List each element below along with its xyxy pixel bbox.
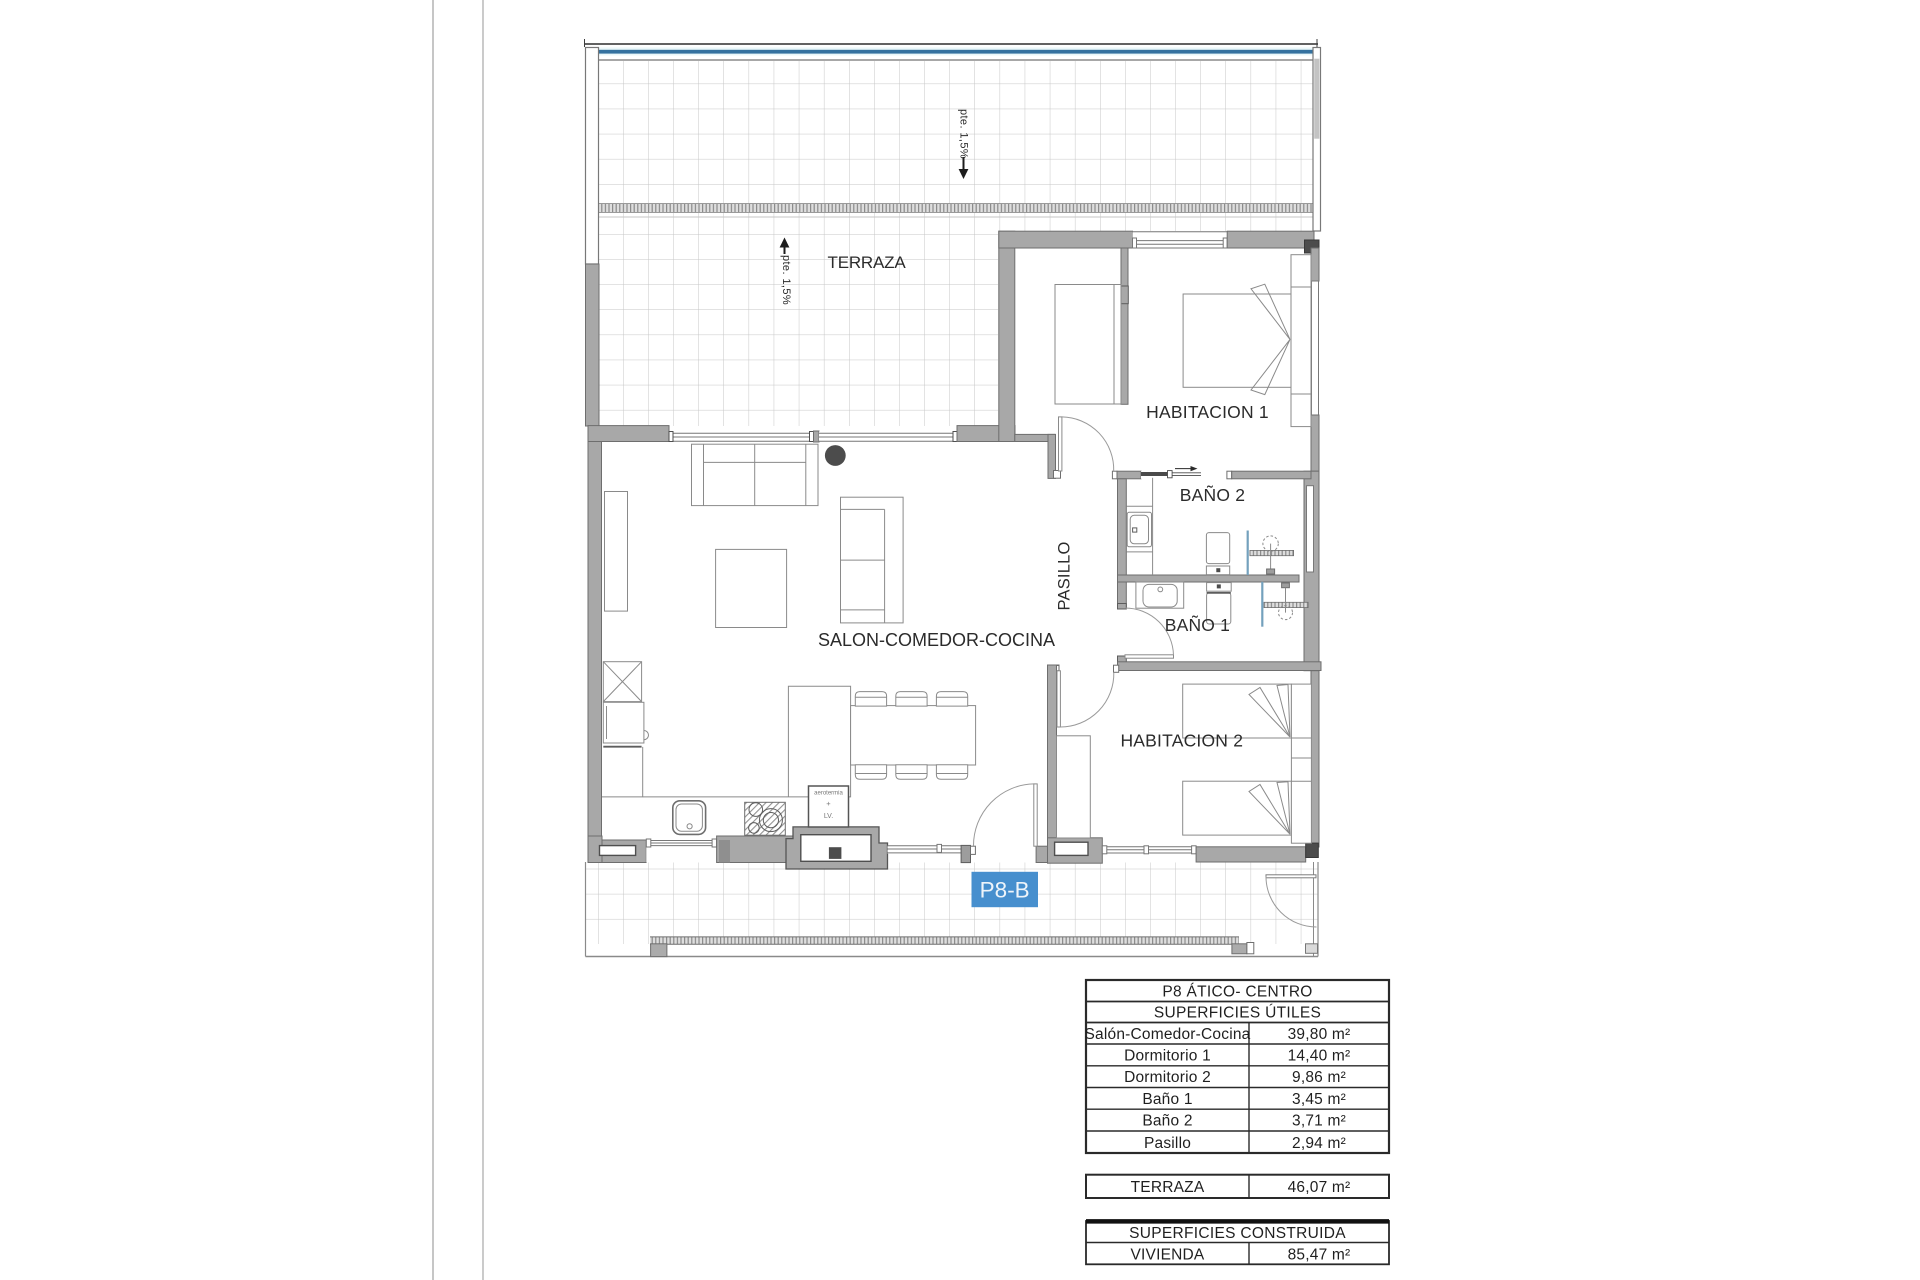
svg-text:HABITACION 2: HABITACION 2	[1120, 731, 1243, 751]
svg-text:SUPERFICIES CONSTRUIDA: SUPERFICIES CONSTRUIDA	[1129, 1225, 1346, 1242]
svg-text:Baño 1: Baño 1	[1142, 1091, 1192, 1108]
svg-text:Pasillo: Pasillo	[1144, 1135, 1191, 1152]
svg-text:+: +	[826, 799, 831, 808]
svg-text:TERRAZA: TERRAZA	[828, 253, 907, 272]
svg-text:Baño 2: Baño 2	[1142, 1113, 1192, 1130]
svg-text:TERRAZA: TERRAZA	[1131, 1179, 1205, 1196]
svg-text:BAÑO 1: BAÑO 1	[1165, 614, 1230, 635]
svg-text:Dormitorio 2: Dormitorio 2	[1124, 1069, 1211, 1086]
svg-text:46,07 m²: 46,07 m²	[1288, 1179, 1351, 1196]
svg-text:Salón-Comedor-Cocina: Salón-Comedor-Cocina	[1085, 1026, 1251, 1043]
svg-text:P8-B: P8-B	[980, 878, 1030, 903]
svg-text:P8 ÁTICO- CENTRO: P8 ÁTICO- CENTRO	[1162, 984, 1312, 1001]
svg-text:3,45 m²: 3,45 m²	[1292, 1091, 1346, 1108]
svg-text:3,71 m²: 3,71 m²	[1292, 1113, 1346, 1130]
svg-text:SUPERFICIES ÚTILES: SUPERFICIES ÚTILES	[1154, 1005, 1321, 1022]
svg-text:pte. 1,5%: pte. 1,5%	[958, 109, 970, 159]
svg-text:SALON-COMEDOR-COCINA: SALON-COMEDOR-COCINA	[818, 630, 1055, 650]
svg-text:LV.: LV.	[824, 813, 833, 820]
svg-text:Dormitorio 1: Dormitorio 1	[1124, 1048, 1211, 1065]
svg-text:14,40 m²: 14,40 m²	[1288, 1048, 1351, 1065]
svg-text:pte. 1,5%: pte. 1,5%	[780, 255, 792, 305]
svg-text:aerotermia: aerotermia	[814, 791, 843, 797]
svg-text:2,94 m²: 2,94 m²	[1292, 1135, 1346, 1152]
svg-text:BAÑO 2: BAÑO 2	[1180, 484, 1245, 505]
svg-text:39,80 m²: 39,80 m²	[1288, 1026, 1351, 1043]
svg-text:PASILLO: PASILLO	[1056, 542, 1074, 611]
svg-text:VIVIENDA: VIVIENDA	[1131, 1247, 1205, 1264]
svg-text:HABITACION 1: HABITACION 1	[1146, 402, 1269, 422]
svg-text:85,47 m²: 85,47 m²	[1288, 1247, 1351, 1264]
svg-text:9,86 m²: 9,86 m²	[1292, 1069, 1346, 1086]
